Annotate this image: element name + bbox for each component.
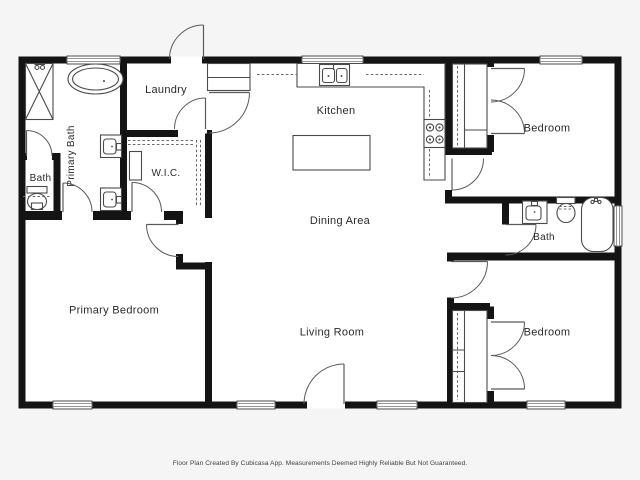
closet-top-shelving [453,64,488,148]
toilet [27,187,47,210]
vanity-sink [523,201,548,224]
bathtub [68,64,123,94]
shower [26,64,54,120]
window [613,206,623,246]
room-label-bedroom-top: Bedroom [524,123,571,135]
room-label-bedroom-bottom: Bedroom [524,327,571,339]
closet-shelf [130,152,142,181]
room-label-bath-left: Bath [30,173,52,184]
window [540,55,582,65]
window [53,400,92,410]
footer-disclaimer: Floor Plan Created By Cubicasa App. Meas… [173,460,468,467]
floor-plan-page: Kitchen Laundry W.I.C. Bath Primary Bath… [0,0,640,480]
entry-door [170,25,204,59]
window [237,400,275,410]
toilet [557,198,576,223]
pantry [208,64,251,91]
room-label-dining: Dining Area [310,215,371,227]
vanity-sink [101,188,122,211]
room-label-primary-bedroom: Primary Bedroom [69,305,159,317]
room-label-bath-right: Bath [533,232,555,243]
kitchen-island [293,136,370,171]
room-label-primary-bath: Primary Bath [66,125,77,186]
vanity-sink [101,135,122,158]
floor-plan-drawing: Kitchen Laundry W.I.C. Bath Primary Bath… [0,0,640,480]
closet-bottom-shelving [453,311,488,403]
window [527,400,565,410]
stove [424,120,445,148]
bathtub [582,198,614,252]
room-label-laundry: Laundry [145,84,187,96]
room-label-living: Living Room [300,327,364,339]
kitchen-sink [320,65,350,86]
room-label-kitchen: Kitchen [317,105,356,117]
window [377,400,417,410]
room-label-wic: W.I.C. [151,168,180,179]
